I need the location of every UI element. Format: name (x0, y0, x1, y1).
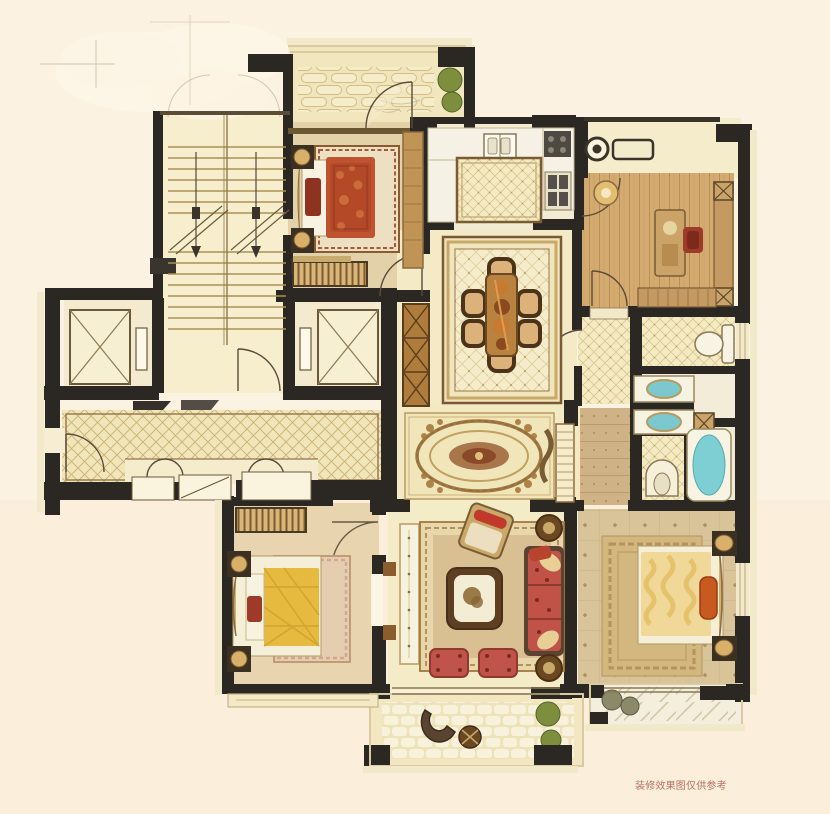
svg-text:装修效果图仅供参考: 装修效果图仅供参考 (635, 779, 727, 792)
